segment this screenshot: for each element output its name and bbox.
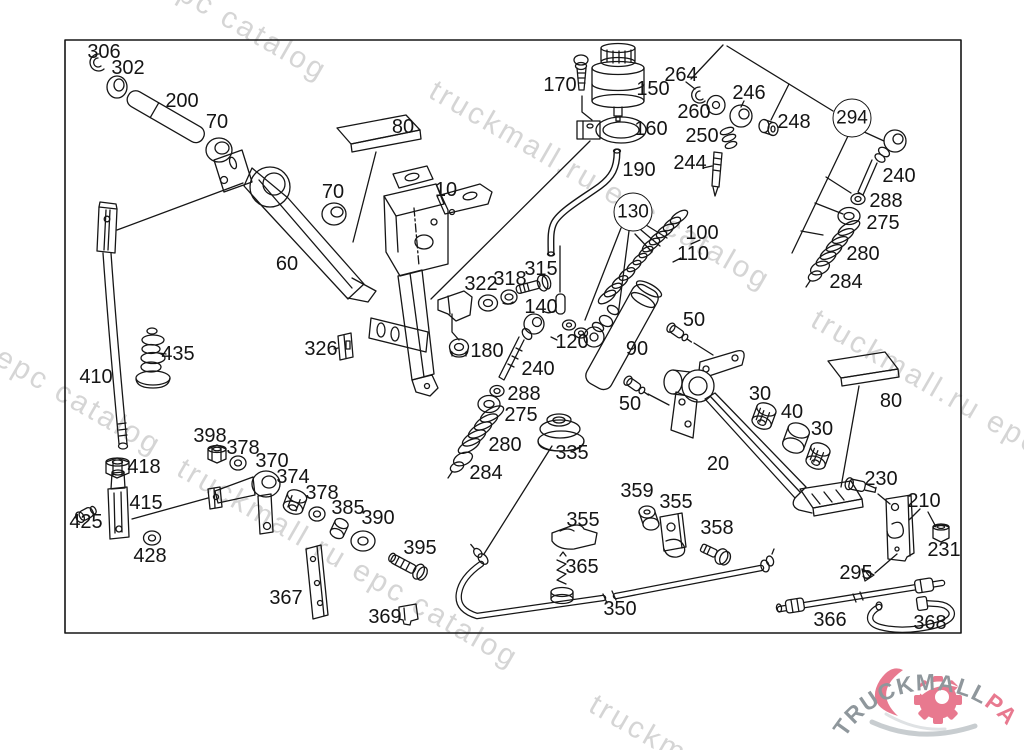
vendor-logo: TRUCKMALLPARTS [0, 0, 1024, 750]
svg-text:TRUCKMALLPARTS: TRUCKMALLPARTS [0, 0, 1023, 741]
logo-text-parts: PARTS [0, 0, 1023, 730]
parts-diagram-page: epc catalogtruckmall.ru epc catalogtruck… [0, 0, 1024, 750]
